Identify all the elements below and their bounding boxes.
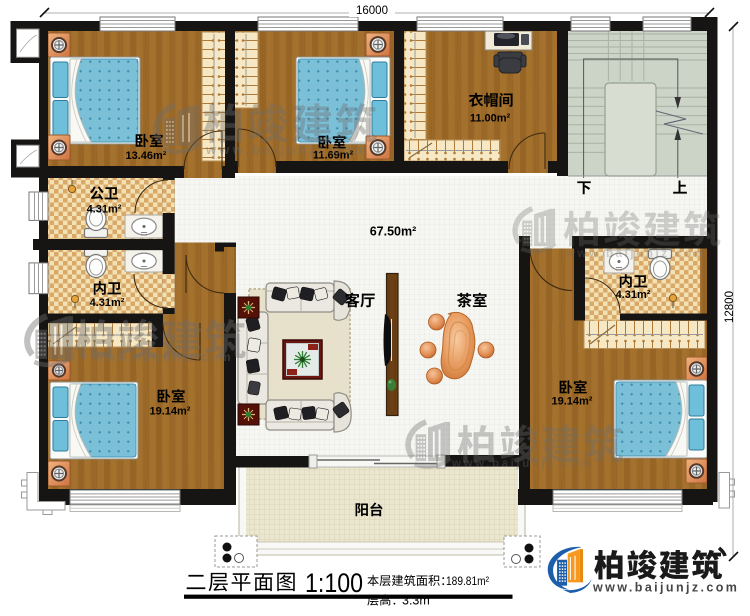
svg-text:www.baijunjz.com: www.baijunjz.com: [93, 350, 233, 364]
svg-text:4.31m²: 4.31m²: [90, 297, 125, 309]
svg-text:4.31m²: 4.31m²: [87, 204, 122, 216]
svg-text:www.baijunjz.com: www.baijunjz.com: [565, 248, 707, 260]
svg-text:12800: 12800: [724, 291, 736, 323]
svg-text:189.81m²: 189.81m²: [446, 574, 489, 588]
svg-text:13.46m²: 13.46m²: [126, 150, 167, 162]
svg-text:19.14m²: 19.14m²: [150, 406, 191, 418]
svg-text:www.baijunjz.com: www.baijunjz.com: [592, 581, 739, 595]
svg-text:www.baijunjz.com: www.baijunjz.com: [451, 458, 593, 470]
svg-text:www.baijunjz.com: www.baijunjz.com: [205, 142, 369, 157]
svg-text:1:100: 1:100: [305, 568, 363, 598]
svg-text:3.3m: 3.3m: [402, 594, 430, 608]
svg-text:11.00m²: 11.00m²: [470, 113, 511, 125]
svg-text:67.50m²: 67.50m²: [370, 225, 417, 239]
svg-text:16000: 16000: [356, 5, 388, 17]
svg-text:19.14m²: 19.14m²: [552, 396, 593, 408]
svg-text:4.31m²: 4.31m²: [616, 289, 651, 301]
